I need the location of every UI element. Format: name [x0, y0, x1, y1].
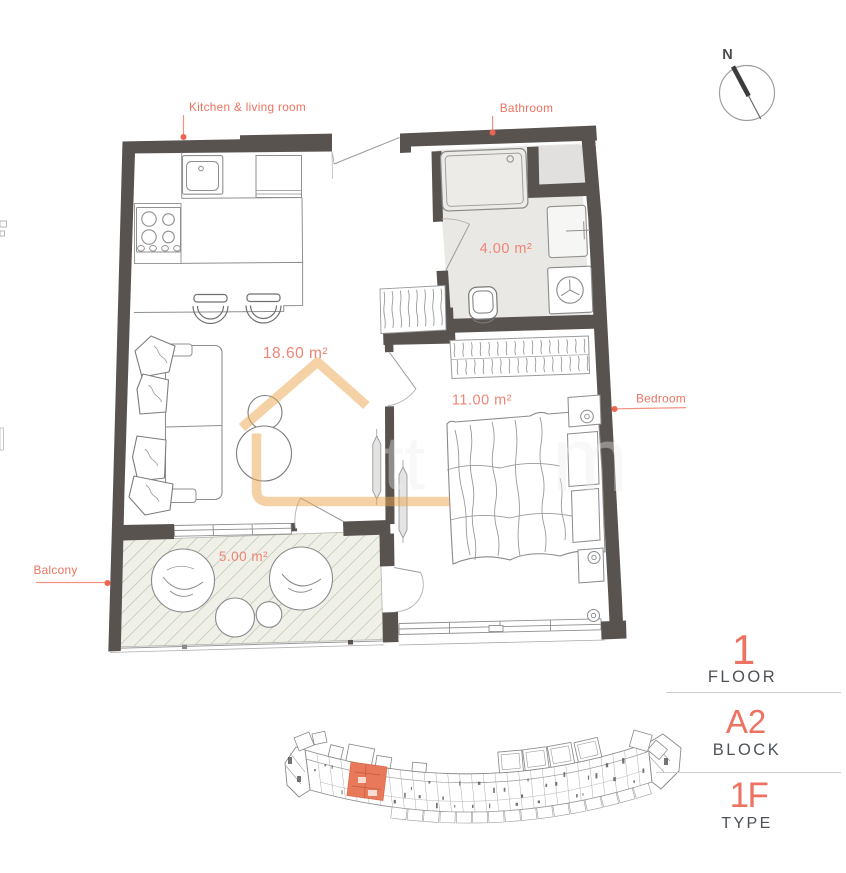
svg-text:N: N	[722, 47, 732, 63]
svg-text:A2: A2	[726, 703, 766, 740]
svg-text:Kitchen & living room: Kitchen & living room	[189, 100, 306, 114]
svg-text:FLOOR: FLOOR	[708, 668, 777, 686]
svg-text:TYPE: TYPE	[721, 815, 772, 832]
svg-text:11.00 m²: 11.00 m²	[452, 393, 512, 409]
svg-text:1F: 1F	[730, 776, 768, 815]
svg-text:Bathroom: Bathroom	[500, 101, 554, 115]
svg-text:18.60 m²: 18.60 m²	[263, 345, 328, 362]
svg-text:tt: tt	[383, 421, 425, 506]
svg-text:5.00 m²: 5.00 m²	[219, 549, 268, 564]
svg-text:Balcony: Balcony	[33, 563, 77, 577]
svg-text:Bedroom: Bedroom	[636, 392, 686, 406]
svg-text:BLOCK: BLOCK	[713, 741, 781, 759]
svg-text:m: m	[552, 409, 629, 511]
svg-text:4.00 m²: 4.00 m²	[480, 241, 533, 257]
svg-text:1: 1	[732, 626, 755, 673]
